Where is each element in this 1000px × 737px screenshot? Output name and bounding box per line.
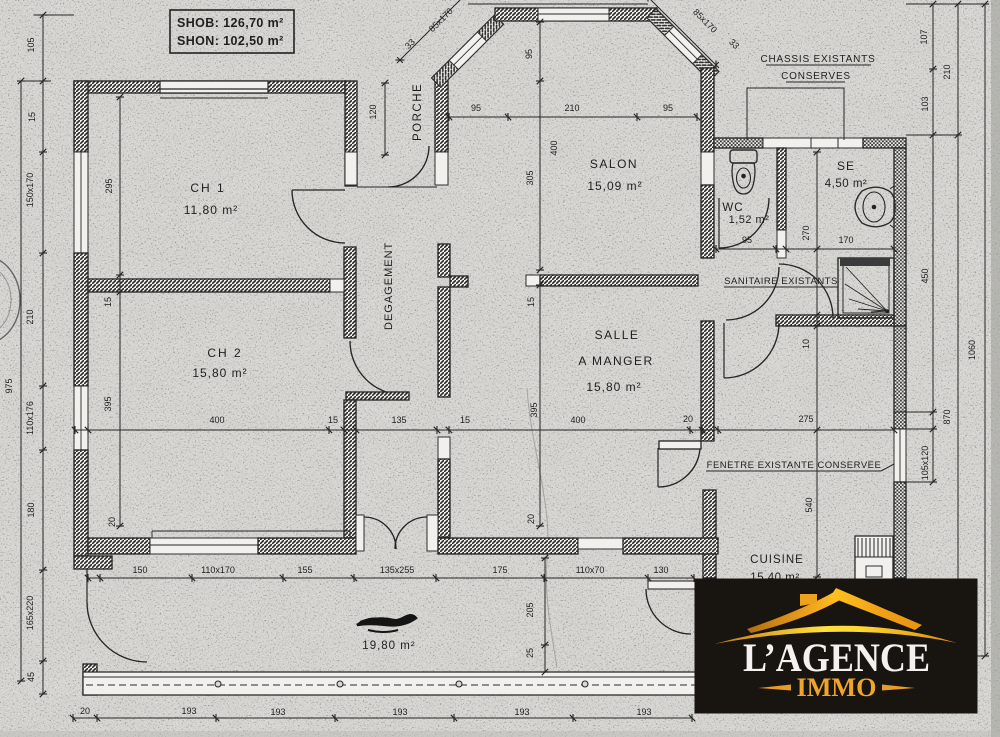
svg-text:210: 210 bbox=[25, 309, 35, 324]
svg-text:20: 20 bbox=[683, 414, 693, 424]
svg-text:110x176: 110x176 bbox=[25, 401, 35, 435]
svg-text:1,52 m²: 1,52 m² bbox=[729, 214, 770, 226]
svg-text:165x220: 165x220 bbox=[25, 596, 35, 631]
svg-text:20: 20 bbox=[80, 706, 90, 716]
svg-text:275: 275 bbox=[798, 414, 813, 424]
svg-text:CHASSIS EXISTANTS: CHASSIS EXISTANTS bbox=[760, 54, 875, 65]
svg-text:193: 193 bbox=[181, 706, 196, 716]
svg-text:CONSERVES: CONSERVES bbox=[781, 71, 851, 82]
svg-text:15,09 m²: 15,09 m² bbox=[587, 179, 642, 193]
svg-text:210: 210 bbox=[942, 64, 952, 79]
svg-text:295: 295 bbox=[104, 178, 114, 193]
svg-text:395: 395 bbox=[103, 396, 113, 411]
svg-text:210: 210 bbox=[564, 103, 579, 113]
svg-text:95: 95 bbox=[663, 103, 673, 113]
svg-text:975: 975 bbox=[4, 378, 14, 393]
svg-text:15: 15 bbox=[526, 297, 536, 307]
svg-text:150x170: 150x170 bbox=[25, 173, 35, 208]
svg-text:400: 400 bbox=[570, 415, 585, 425]
svg-text:400: 400 bbox=[549, 140, 559, 155]
svg-text:170: 170 bbox=[838, 235, 853, 245]
svg-text:120: 120 bbox=[368, 104, 378, 119]
svg-text:193: 193 bbox=[514, 707, 529, 717]
svg-text:15: 15 bbox=[103, 297, 113, 307]
svg-text:205: 205 bbox=[525, 602, 535, 617]
svg-text:SALON: SALON bbox=[590, 157, 638, 171]
svg-text:130: 130 bbox=[653, 565, 668, 575]
svg-text:SHOB: 126,70 m²: SHOB: 126,70 m² bbox=[177, 16, 284, 30]
svg-text:19,80 m²: 19,80 m² bbox=[362, 640, 415, 652]
svg-text:45: 45 bbox=[26, 672, 36, 682]
svg-text:95: 95 bbox=[524, 49, 534, 59]
svg-text:540: 540 bbox=[804, 497, 814, 512]
svg-text:20: 20 bbox=[526, 514, 536, 524]
svg-text:WC: WC bbox=[722, 202, 743, 214]
svg-text:SANITAIRE EXISTANTS: SANITAIRE EXISTANTS bbox=[724, 276, 838, 287]
svg-text:105x120: 105x120 bbox=[920, 446, 930, 481]
svg-text:CH 1: CH 1 bbox=[190, 181, 225, 195]
svg-text:103: 103 bbox=[920, 96, 930, 111]
svg-text:95: 95 bbox=[471, 103, 481, 113]
svg-text:155: 155 bbox=[297, 565, 312, 575]
svg-text:305: 305 bbox=[525, 170, 535, 185]
svg-text:193: 193 bbox=[392, 707, 407, 717]
svg-text:SALLE: SALLE bbox=[595, 328, 640, 342]
svg-text:180: 180 bbox=[26, 502, 36, 517]
svg-text:25: 25 bbox=[525, 648, 535, 658]
svg-text:IMMO: IMMO bbox=[797, 673, 877, 702]
svg-text:PORCHE: PORCHE bbox=[412, 83, 424, 141]
svg-text:15,80 m²: 15,80 m² bbox=[192, 366, 247, 380]
svg-text:FENETRE EXISTANTE CONSERVEE: FENETRE EXISTANTE CONSERVEE bbox=[707, 460, 882, 471]
svg-text:395: 395 bbox=[529, 402, 539, 417]
svg-text:15: 15 bbox=[27, 112, 37, 122]
svg-text:A MANGER: A MANGER bbox=[578, 354, 653, 368]
svg-text:105: 105 bbox=[26, 37, 36, 52]
svg-text:135: 135 bbox=[391, 415, 406, 425]
svg-text:193: 193 bbox=[270, 707, 285, 717]
svg-text:110x170: 110x170 bbox=[201, 565, 235, 575]
svg-text:193: 193 bbox=[636, 707, 651, 717]
svg-text:DEGAGEMENT: DEGAGEMENT bbox=[383, 242, 395, 330]
svg-text:10: 10 bbox=[801, 339, 811, 349]
svg-text:400: 400 bbox=[209, 415, 224, 425]
svg-text:870: 870 bbox=[942, 409, 952, 424]
svg-text:CH 2: CH 2 bbox=[207, 346, 242, 360]
svg-text:CUISINE: CUISINE bbox=[750, 554, 804, 566]
svg-text:270: 270 bbox=[801, 225, 811, 240]
svg-text:95: 95 bbox=[742, 235, 752, 245]
svg-text:1060: 1060 bbox=[967, 340, 977, 360]
svg-text:20: 20 bbox=[107, 517, 117, 527]
svg-text:15,80 m²: 15,80 m² bbox=[586, 380, 641, 394]
svg-text:150: 150 bbox=[132, 565, 147, 575]
svg-text:450: 450 bbox=[920, 268, 930, 283]
svg-text:110x70: 110x70 bbox=[576, 565, 605, 575]
svg-text:4,50 m²: 4,50 m² bbox=[825, 178, 868, 190]
svg-text:135x255: 135x255 bbox=[380, 565, 415, 575]
svg-text:11,80 m²: 11,80 m² bbox=[184, 203, 238, 217]
svg-text:15: 15 bbox=[328, 415, 338, 425]
svg-text:SE: SE bbox=[837, 159, 855, 173]
svg-text:15: 15 bbox=[460, 415, 470, 425]
svg-text:SHON: 102,50 m²: SHON: 102,50 m² bbox=[177, 34, 284, 48]
svg-text:107: 107 bbox=[919, 29, 929, 44]
svg-text:175: 175 bbox=[492, 565, 507, 575]
